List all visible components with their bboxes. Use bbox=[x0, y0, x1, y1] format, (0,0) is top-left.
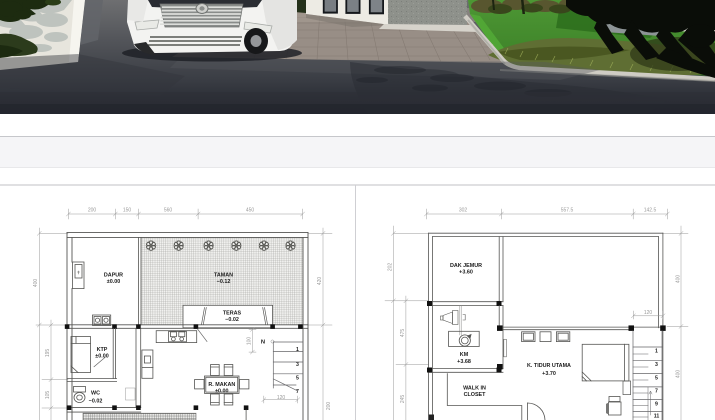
svg-text:7: 7 bbox=[296, 389, 299, 395]
svg-text:TERAS: TERAS bbox=[223, 311, 242, 317]
svg-text:420: 420 bbox=[317, 277, 323, 286]
svg-text:5: 5 bbox=[655, 375, 658, 381]
svg-text:N: N bbox=[261, 340, 265, 346]
svg-text:200: 200 bbox=[88, 208, 97, 214]
svg-text:560: 560 bbox=[164, 208, 173, 214]
svg-text:−0.12: −0.12 bbox=[217, 279, 231, 285]
svg-text:WC: WC bbox=[91, 391, 100, 397]
svg-text:+3.60: +3.60 bbox=[459, 270, 473, 276]
svg-text:202: 202 bbox=[388, 263, 394, 272]
svg-text:195: 195 bbox=[45, 349, 51, 358]
svg-text:7: 7 bbox=[655, 389, 658, 395]
svg-text:3: 3 bbox=[296, 362, 299, 368]
svg-text:CLOSET: CLOSET bbox=[464, 392, 487, 398]
svg-text:200: 200 bbox=[326, 402, 332, 411]
svg-text:WALK IN: WALK IN bbox=[463, 385, 486, 391]
svg-text:−0.02: −0.02 bbox=[225, 317, 239, 323]
svg-text:KTP: KTP bbox=[97, 347, 108, 353]
svg-text:1: 1 bbox=[655, 349, 658, 355]
svg-text:11: 11 bbox=[654, 414, 660, 420]
svg-text:450: 450 bbox=[246, 208, 255, 214]
svg-text:9: 9 bbox=[655, 402, 658, 408]
svg-text:5: 5 bbox=[296, 376, 299, 382]
svg-text:+3.68: +3.68 bbox=[457, 359, 471, 365]
svg-text:KM: KM bbox=[460, 352, 469, 358]
svg-text:400: 400 bbox=[33, 279, 39, 288]
svg-text:400: 400 bbox=[676, 370, 682, 379]
svg-text:−0.02: −0.02 bbox=[89, 399, 103, 405]
svg-text:±0.00: ±0.00 bbox=[107, 279, 120, 285]
svg-text:100: 100 bbox=[247, 337, 253, 346]
svg-text:TAMAN: TAMAN bbox=[214, 273, 233, 279]
svg-text:DAPUR: DAPUR bbox=[104, 273, 123, 279]
svg-text:150: 150 bbox=[123, 208, 132, 214]
svg-text:K. TIDUR UTAMA: K. TIDUR UTAMA bbox=[527, 363, 571, 369]
svg-text:3: 3 bbox=[655, 362, 658, 368]
svg-text:400: 400 bbox=[676, 275, 682, 284]
svg-text:±0.00: ±0.00 bbox=[215, 389, 228, 395]
svg-text:475: 475 bbox=[400, 329, 406, 338]
svg-text:DAK JEMUR: DAK JEMUR bbox=[450, 263, 482, 269]
svg-text:±0.00: ±0.00 bbox=[95, 354, 108, 360]
svg-text:R. MAKAN: R. MAKAN bbox=[208, 382, 235, 388]
svg-text:1: 1 bbox=[296, 347, 299, 353]
svg-text:302: 302 bbox=[459, 208, 468, 214]
svg-text:245: 245 bbox=[400, 395, 406, 404]
svg-text:142.5: 142.5 bbox=[644, 208, 657, 214]
svg-text:557.5: 557.5 bbox=[561, 208, 574, 214]
svg-text:120: 120 bbox=[277, 395, 286, 401]
svg-text:120: 120 bbox=[644, 310, 653, 316]
svg-text:+3.70: +3.70 bbox=[542, 371, 556, 377]
svg-text:105: 105 bbox=[45, 391, 51, 400]
